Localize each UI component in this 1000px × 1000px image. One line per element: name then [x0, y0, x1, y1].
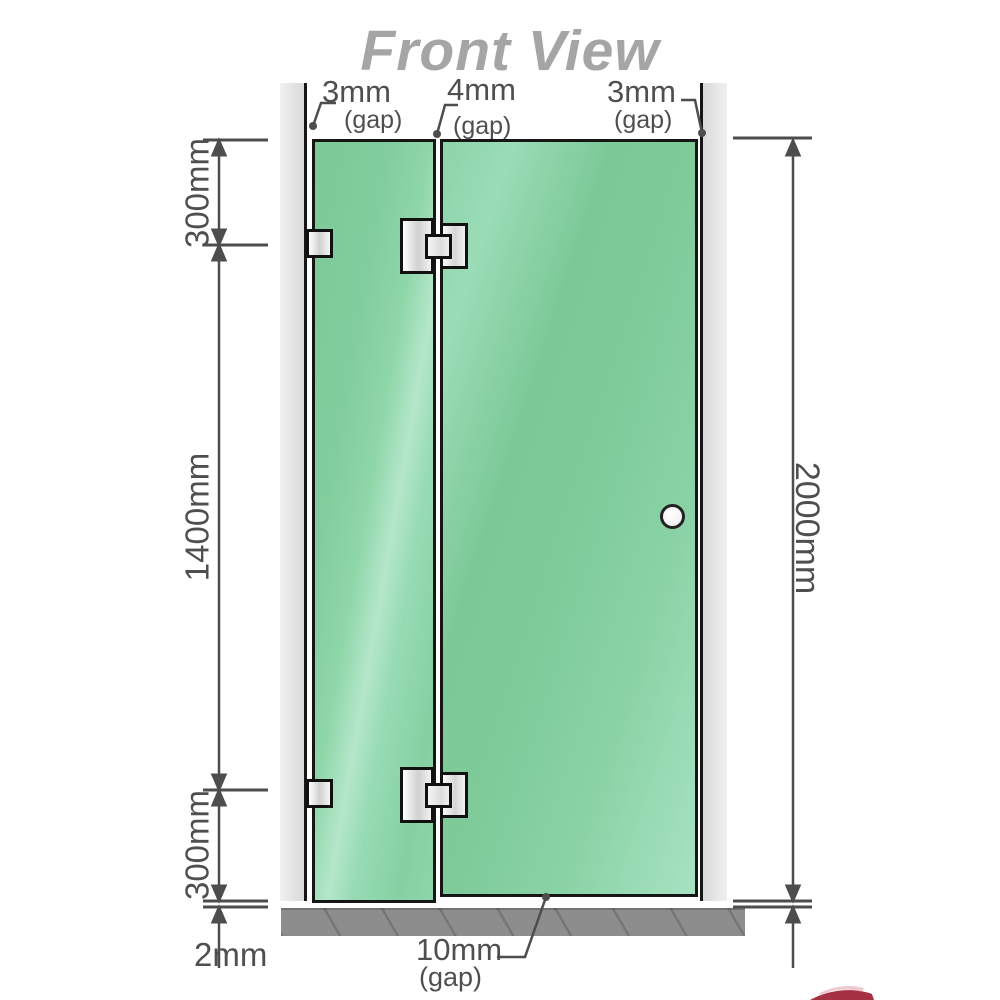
dim-left-bottom-label: 300mm	[181, 790, 214, 900]
door-knob	[660, 504, 685, 529]
bottom-wall-bracket	[306, 779, 333, 808]
bottom-gap-note: (gap)	[419, 964, 482, 991]
gap-middle-note: (gap)	[453, 114, 511, 139]
gap-right-note: (gap)	[614, 108, 672, 133]
floor-strip	[281, 908, 745, 936]
hinge-knuckle-icon	[425, 783, 452, 808]
dim-floor-gap-label: 2mm	[194, 938, 267, 971]
gap-middle-value: 4mm	[447, 74, 516, 105]
watermark-swoosh-icon	[810, 986, 874, 1000]
gap-left-value: 3mm	[322, 76, 391, 107]
bottom-gap-value: 10mm	[416, 934, 502, 965]
right-wall	[700, 83, 727, 901]
bottom-hinge	[400, 767, 468, 823]
front-view-diagram: Front View	[0, 0, 1000, 1000]
dim-left-middle-label: 1400mm	[181, 453, 214, 581]
gap-right-value: 3mm	[607, 76, 676, 107]
hinge-knuckle-icon	[425, 234, 452, 259]
gap-left-note: (gap)	[344, 108, 402, 133]
top-wall-bracket	[306, 229, 333, 258]
dim-left-top-label: 300mm	[181, 138, 214, 248]
dim-right-label: 2000mm	[790, 462, 824, 594]
top-hinge	[400, 218, 468, 274]
left-wall	[280, 83, 307, 901]
